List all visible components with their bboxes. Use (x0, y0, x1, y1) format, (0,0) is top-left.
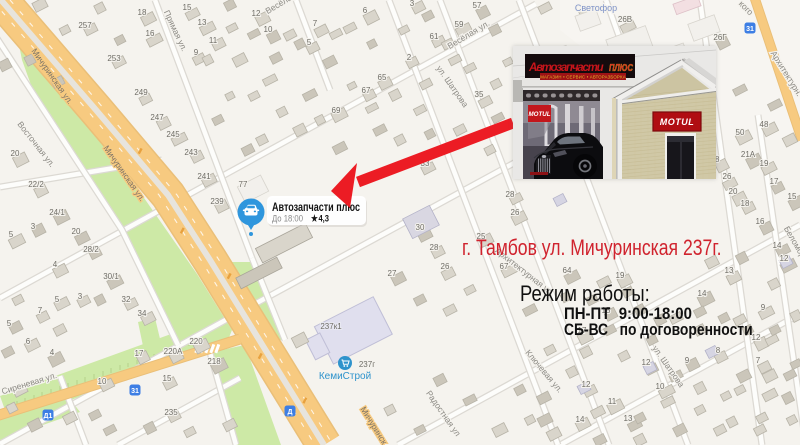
svg-text:26: 26 (723, 172, 732, 181)
svg-text:5: 5 (9, 230, 14, 239)
svg-text:7: 7 (38, 306, 43, 315)
svg-text:20: 20 (72, 227, 81, 236)
svg-text:14: 14 (576, 415, 585, 424)
svg-text:35: 35 (475, 90, 484, 99)
svg-text:243: 243 (184, 148, 198, 157)
svg-text:Д1: Д1 (44, 413, 53, 420)
svg-text:239: 239 (210, 197, 224, 206)
svg-text:12: 12 (642, 358, 651, 367)
svg-text:Светофор: Светофор (575, 3, 617, 13)
svg-text:257: 257 (78, 21, 92, 30)
svg-text:247: 247 (150, 113, 164, 122)
svg-text:15: 15 (163, 374, 172, 383)
svg-text:28: 28 (506, 190, 515, 199)
svg-text:9: 9 (685, 356, 690, 365)
svg-text:12: 12 (752, 333, 761, 342)
svg-text:237г: 237г (359, 360, 375, 369)
svg-text:10: 10 (264, 25, 273, 34)
svg-text:218: 218 (207, 357, 221, 366)
svg-text:220: 220 (189, 337, 203, 346)
svg-text:17: 17 (770, 177, 779, 186)
svg-text:19: 19 (616, 271, 625, 280)
svg-text:5: 5 (7, 319, 12, 328)
svg-text:11: 11 (209, 36, 218, 45)
svg-text:14: 14 (773, 241, 782, 250)
svg-text:12: 12 (252, 9, 261, 18)
svg-text:11: 11 (608, 397, 617, 406)
svg-text:MOTUL: MOTUL (529, 111, 551, 118)
svg-text:5: 5 (55, 295, 60, 304)
svg-text:5: 5 (307, 38, 312, 47)
svg-text:28: 28 (430, 243, 439, 252)
svg-text:28/2: 28/2 (83, 245, 99, 254)
svg-text:61: 61 (430, 32, 439, 41)
svg-text:69: 69 (332, 106, 341, 115)
svg-text:6: 6 (26, 337, 31, 346)
svg-text:18: 18 (138, 8, 147, 17)
svg-text:21А: 21А (741, 150, 756, 159)
svg-text:31: 31 (746, 26, 754, 33)
svg-text:13: 13 (725, 266, 734, 275)
svg-text:3: 3 (78, 292, 83, 301)
svg-text:До 18:00: До 18:00 (272, 214, 303, 225)
svg-text:31: 31 (131, 388, 139, 395)
svg-text:253: 253 (107, 54, 121, 63)
svg-text:27: 27 (388, 269, 397, 278)
svg-text:237к1: 237к1 (320, 322, 342, 331)
svg-text:14: 14 (698, 289, 707, 298)
svg-text:ПЛЮС: ПЛЮС (609, 63, 634, 74)
svg-text:48: 48 (760, 120, 769, 129)
svg-text:26: 26 (441, 262, 450, 271)
svg-text:30/1: 30/1 (103, 272, 119, 281)
svg-text:57: 57 (473, 1, 482, 10)
svg-text:13: 13 (198, 18, 207, 27)
svg-text:12: 12 (582, 380, 591, 389)
svg-text:235: 235 (164, 408, 178, 417)
svg-text:13: 13 (624, 414, 633, 423)
svg-text:30: 30 (416, 223, 425, 232)
svg-text:3: 3 (410, 0, 415, 8)
svg-text:10: 10 (98, 377, 107, 386)
svg-text:18: 18 (741, 199, 750, 208)
svg-text:12: 12 (780, 254, 789, 263)
svg-text:26В: 26В (618, 15, 632, 24)
svg-text:77: 77 (239, 180, 248, 189)
svg-text:220А: 220А (164, 347, 183, 356)
svg-text:MOTUL: MOTUL (660, 117, 695, 127)
svg-text:20: 20 (729, 187, 738, 196)
svg-text:15: 15 (788, 192, 797, 201)
svg-text:7: 7 (313, 19, 318, 28)
svg-text:16: 16 (146, 29, 155, 38)
svg-text:10: 10 (656, 382, 665, 391)
svg-text:КемиСтрой: КемиСтрой (319, 371, 371, 382)
svg-text:50: 50 (736, 128, 745, 137)
svg-text:26Г: 26Г (713, 33, 727, 42)
svg-text:64: 64 (563, 266, 572, 275)
svg-text:32: 32 (122, 295, 131, 304)
svg-text:249: 249 (134, 88, 148, 97)
svg-text:МАГАЗИН • СЕРВИС • АВТОРАЗБОРК: МАГАЗИН • СЕРВИС • АВТОРАЗБОРКА (540, 75, 626, 80)
svg-text:16: 16 (756, 217, 765, 226)
svg-text:7: 7 (756, 356, 761, 365)
svg-text:65: 65 (378, 73, 387, 82)
svg-text:3: 3 (31, 222, 36, 231)
svg-text:4: 4 (50, 348, 55, 357)
svg-text:2: 2 (407, 53, 412, 62)
svg-text:19: 19 (760, 159, 769, 168)
svg-text:9: 9 (194, 48, 199, 57)
svg-text:59: 59 (455, 20, 464, 29)
svg-text:★ 4,3: ★ 4,3 (311, 214, 329, 225)
svg-text:67: 67 (362, 86, 371, 95)
svg-text:20: 20 (11, 149, 20, 158)
svg-text:22/2: 22/2 (28, 180, 44, 189)
svg-text:17: 17 (135, 349, 144, 358)
svg-text:Автозапчасти: Автозапчасти (528, 62, 604, 74)
svg-text:241: 241 (197, 172, 211, 181)
svg-text:15: 15 (183, 3, 192, 12)
svg-text:245: 245 (166, 130, 180, 139)
svg-text:6: 6 (363, 6, 368, 15)
svg-text:8: 8 (716, 346, 721, 355)
svg-text:Д: Д (288, 409, 293, 416)
svg-text:34: 34 (138, 309, 147, 318)
svg-text:9: 9 (761, 303, 766, 312)
svg-text:4: 4 (53, 260, 58, 269)
svg-text:26: 26 (511, 208, 520, 217)
svg-text:24/1: 24/1 (49, 208, 65, 217)
svg-text:67: 67 (500, 262, 509, 271)
